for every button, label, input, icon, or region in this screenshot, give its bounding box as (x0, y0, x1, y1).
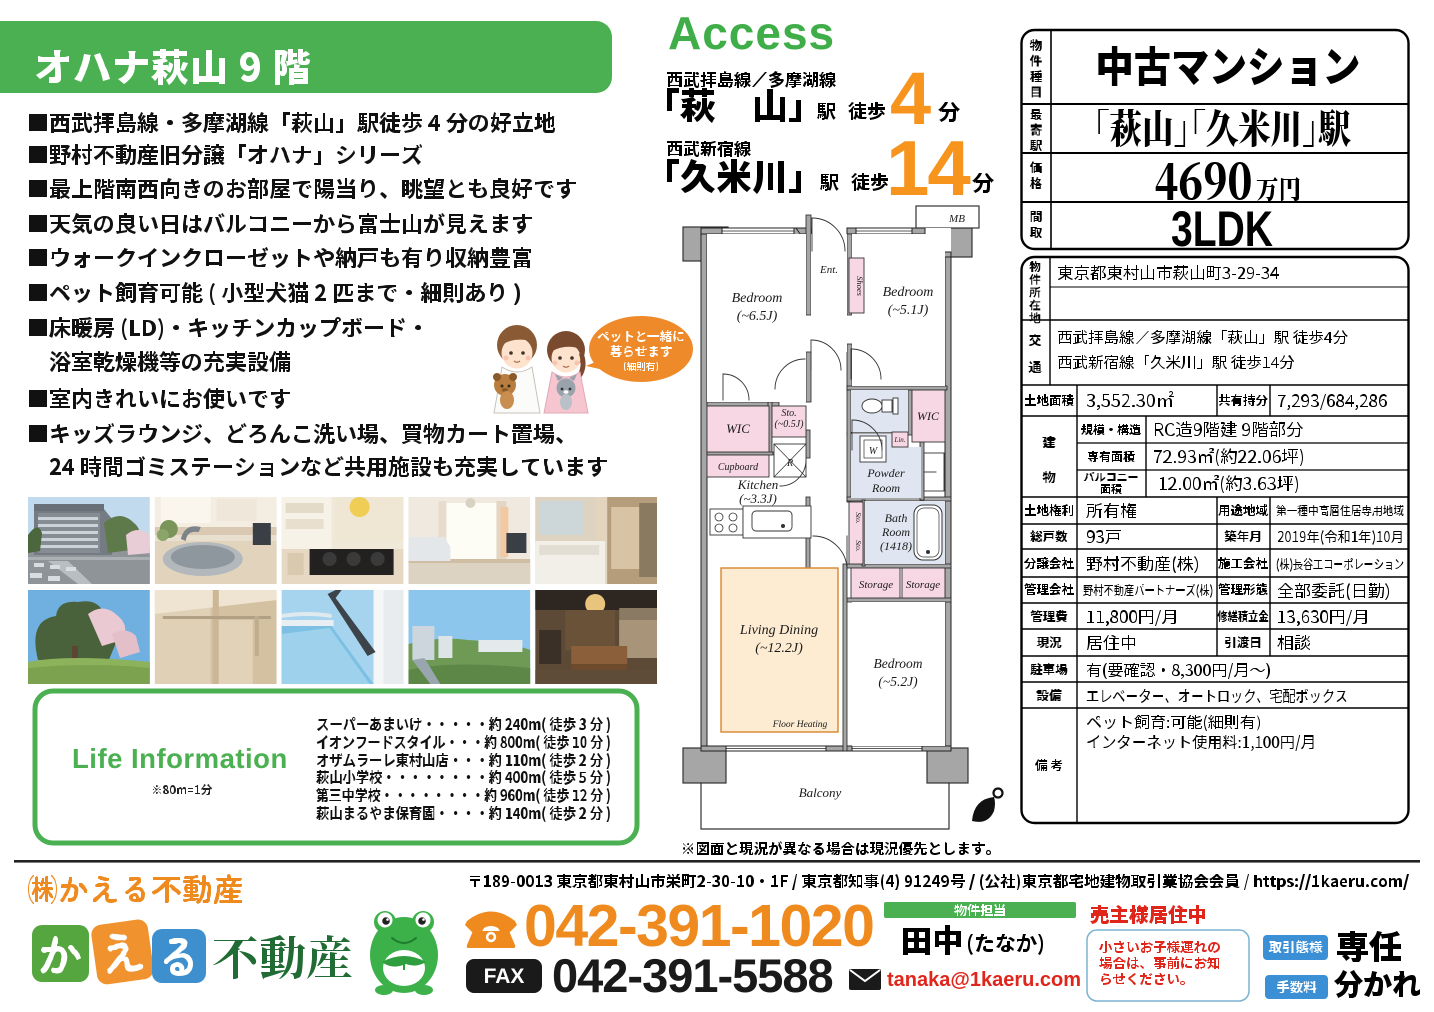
svg-text:MB: MB (948, 213, 965, 225)
svg-text:Kitchen: Kitchen (737, 477, 778, 492)
svg-text:3LDK: 3LDK (1171, 201, 1273, 257)
svg-text:Storage: Storage (906, 579, 940, 591)
svg-text:Bedroom: Bedroom (732, 291, 783, 306)
svg-text:Bedroom: Bedroom (874, 656, 923, 671)
svg-text:Bath: Bath (885, 511, 908, 525)
svg-text:Ent.: Ent. (819, 264, 838, 276)
svg-text:tanaka@1kaeru.com: tanaka@1kaeru.com (887, 969, 1081, 991)
svg-text:042-391-5588: 042-391-5588 (552, 949, 833, 1002)
svg-text:14: 14 (886, 124, 970, 212)
svg-text:WIC: WIC (917, 409, 940, 423)
svg-text:Lin.: Lin. (893, 436, 905, 444)
svg-text:Floor Heating: Floor Heating (772, 720, 828, 730)
svg-text:Storage: Storage (859, 579, 893, 591)
svg-text:(~12.2J): (~12.2J) (755, 641, 803, 656)
svg-text:WIC: WIC (726, 421, 750, 436)
svg-text:Room: Room (871, 481, 900, 495)
svg-text:Sto.: Sto. (854, 512, 863, 524)
svg-text:Life Information: Life Information (72, 743, 288, 774)
svg-text:Access: Access (668, 7, 835, 59)
svg-text:R: R (786, 458, 793, 469)
svg-text:Shoes: Shoes (855, 276, 865, 297)
svg-text:Sto.: Sto. (781, 408, 796, 419)
svg-text:Powder: Powder (866, 466, 905, 480)
svg-text:Balcony: Balcony (799, 785, 842, 800)
svg-text:(1418): (1418) (880, 539, 912, 553)
svg-text:Cupboard: Cupboard (718, 462, 759, 473)
svg-text:(~5.2J): (~5.2J) (878, 674, 918, 689)
svg-text:Bedroom: Bedroom (883, 285, 934, 300)
svg-text:(~6.5J): (~6.5J) (737, 309, 778, 324)
svg-text:Sto.: Sto. (854, 540, 863, 552)
svg-text:Room: Room (881, 525, 910, 539)
svg-text:Living Dining: Living Dining (739, 623, 818, 638)
svg-text:(~3.3J): (~3.3J) (739, 491, 777, 506)
svg-text:(~5.1J): (~5.1J) (888, 303, 929, 318)
svg-text:FAX: FAX (484, 965, 525, 988)
svg-text:(~0.5J): (~0.5J) (774, 419, 804, 430)
